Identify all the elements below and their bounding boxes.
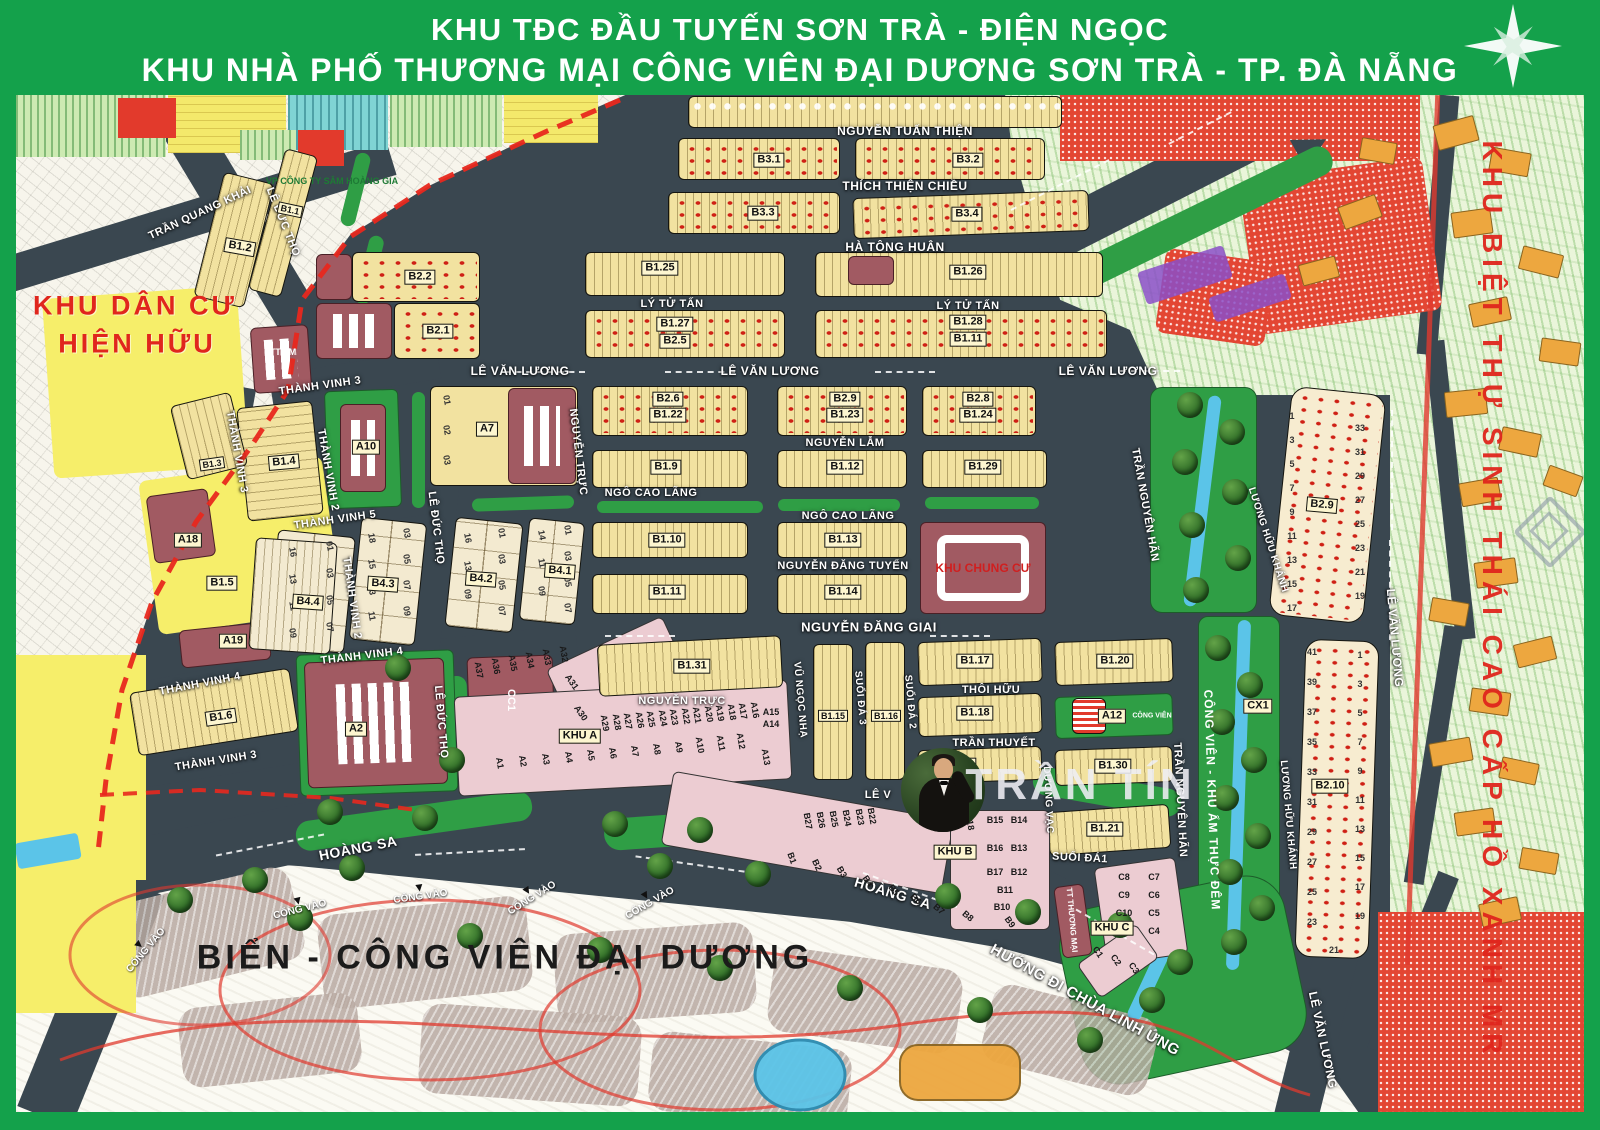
lot-number: 7 — [1289, 483, 1294, 493]
lot-chip-b10: B10 — [994, 902, 1011, 912]
block-chip-b1-26: B1.26 — [949, 265, 986, 280]
lot-chip-a1: A1 — [494, 756, 506, 769]
lot-number: 13 — [287, 573, 299, 585]
map-shape-beachpatch — [417, 1002, 643, 1107]
lot-number: 13 — [1287, 555, 1297, 565]
tree-icon — [1015, 899, 1041, 925]
lot-number: 03 — [324, 567, 336, 579]
lot-number: 09 — [401, 605, 413, 617]
map-shape-median — [597, 501, 763, 513]
lot-number: 09 — [536, 585, 548, 597]
map-shape-median — [412, 392, 425, 508]
street-label-nguy-n-tu-n-thi-n: NGUYỄN TUẤN THIỆN — [837, 124, 973, 138]
tree-icon — [837, 975, 863, 1001]
tree-icon — [602, 811, 628, 837]
area-text-bi-n-c-ng-vi-n-i-d-ng: BIỂN - CÔNG VIÊN ĐẠI DƯƠNG — [197, 939, 813, 978]
street-label-nguy-n-ng-giai: NGUYỄN ĐĂNG GIAI — [801, 620, 937, 635]
road-centerline — [415, 848, 525, 856]
lot-number: 02 — [441, 424, 453, 436]
tree-icon — [242, 867, 268, 893]
map-shape-median — [472, 495, 574, 512]
block-chip-a19: A19 — [219, 634, 247, 649]
master-plan-map: NGUYỄN TUẤN THIỆNTHÍCH THIỆN CHIỀUHÀ TÔN… — [0, 0, 1600, 1130]
area-text-c-ng-vi-n: CÔNG VIÊN — [1132, 713, 1171, 720]
lot-number: 11 — [366, 610, 378, 621]
lot-chip-c8: C8 — [1118, 872, 1130, 882]
tree-icon — [1179, 512, 1205, 538]
lot-number: 5 — [1289, 459, 1294, 469]
lot-chip-c7: C7 — [1148, 872, 1160, 882]
street-label-h-t-ng-hu-n: HÀ TÔNG HUÂN — [845, 240, 944, 254]
lot-number: 33 — [1355, 423, 1365, 433]
tree-icon — [1183, 577, 1209, 603]
block-chip-b1-20: B1.20 — [1096, 654, 1133, 669]
block-chip-b2-6: B2.6 — [652, 392, 683, 407]
road-centerline — [930, 635, 990, 637]
lot-number: 21 — [1355, 567, 1365, 577]
block-chip-b1-25: B1.25 — [641, 261, 678, 276]
lot-chip-c10: C10 — [1116, 908, 1133, 918]
tree-icon — [1205, 635, 1231, 661]
lot-number: 09 — [462, 588, 474, 600]
lot-number: 01 — [562, 524, 574, 536]
lot-chip-a8: A8 — [651, 742, 663, 755]
map-shape-median — [925, 497, 1039, 509]
block-chip-b1-27: B1.27 — [656, 317, 693, 332]
map-block-maroon — [316, 254, 352, 300]
block-chip-b1-14: B1.14 — [824, 585, 861, 600]
lot-number: 17 — [1287, 603, 1297, 613]
tree-icon — [1172, 449, 1198, 475]
tree-icon — [167, 887, 193, 913]
compass-star-icon — [1458, 2, 1568, 90]
block-chip-b2-10: B2.10 — [1311, 779, 1348, 794]
map-block-maroon — [146, 488, 217, 564]
tree-icon — [1222, 479, 1248, 505]
lot-number: 23 — [1307, 917, 1317, 927]
block-chip-b1-13: B1.13 — [824, 533, 861, 548]
block-chip-b3-3: B3.3 — [747, 206, 778, 221]
lot-chip-a15: A15 — [763, 707, 780, 717]
lot-chip-b14: B14 — [1011, 815, 1028, 825]
block-chip-a2: A2 — [345, 722, 367, 737]
logo-watermark-icon — [1516, 498, 1578, 560]
lot-number: 7 — [1357, 737, 1362, 747]
lot-number: 31 — [1355, 447, 1365, 457]
block-chip-b1-22: B1.22 — [649, 408, 686, 423]
block-chip-b4-3: B4.3 — [367, 576, 399, 593]
lot-number: 35 — [1307, 737, 1317, 747]
frame-left — [0, 95, 16, 1112]
lot-number: 1 — [1357, 650, 1362, 660]
tree-icon — [1225, 545, 1251, 571]
street-label-l-v: LÊ V — [865, 789, 891, 801]
street-label-nguy-n-ng-tuy-n: NGUYỄN ĐĂNG TUYỂN — [777, 560, 908, 572]
tree-icon — [385, 655, 411, 681]
street-label-th-i-h-u: THÔI HỮU — [962, 684, 1020, 696]
frame-bottom — [0, 1112, 1600, 1130]
lot-number: 1 — [1289, 411, 1294, 421]
lot-number: 3 — [1289, 435, 1294, 445]
lot-chip-b12: B12 — [1011, 867, 1028, 877]
block-chip-a7: A7 — [476, 422, 498, 437]
street-label-ng-cao-l-ng: NGÔ CAO LÃNG — [605, 487, 698, 499]
block-chip-b1-10: B1.10 — [648, 533, 685, 548]
block-chip-khu-a: KHU A — [559, 729, 601, 744]
block-chip-b1-23: B1.23 — [826, 408, 863, 423]
area-text-tt-tm: TT TM — [270, 347, 297, 357]
tree-icon — [1139, 987, 1165, 1013]
block-chip-b4-1: B4.1 — [544, 563, 576, 580]
street-label-l-v-n-l-ng: LÊ VĂN LƯƠNG — [471, 364, 570, 378]
block-chip-b1-4: B1.4 — [268, 453, 300, 470]
photo-person-bowtie — [940, 781, 948, 785]
lot-chip-c6: C6 — [1148, 890, 1160, 900]
map-shape-ypatch — [16, 868, 136, 1013]
lot-chip-b15: B15 — [987, 815, 1004, 825]
lot-number: 27 — [1355, 495, 1365, 505]
area-text-cc1: CC1 — [505, 689, 517, 711]
tree-icon — [412, 805, 438, 831]
block-chip-khu-c: KHU C — [1091, 921, 1134, 936]
street-label-l-v-n-l-ng: LÊ VĂN LƯƠNG — [1059, 364, 1158, 378]
area-text-khu-chung-c: KHU CHUNG CƯ — [935, 561, 1030, 575]
area-text-khu-bi-t-th-sinh-th-i-ca: KHU BIỆT THỰ SINH THÁI CAO CẤP HỒ XANH M… — [1476, 141, 1508, 1060]
lot-number: 11 — [1355, 795, 1365, 805]
lot-number: 03 — [401, 527, 413, 539]
lot-chip-a6: A6 — [607, 746, 619, 759]
frame-right — [1584, 95, 1600, 1112]
tree-icon — [1167, 949, 1193, 975]
block-chip-b1-11: B1.11 — [649, 585, 686, 600]
map-title-line2: KHU NHÀ PHỐ THƯƠNG MẠI CÔNG VIÊN ĐẠI DƯƠ… — [0, 52, 1600, 89]
lot-number: 19 — [1355, 591, 1365, 601]
lot-chip-b11: B11 — [997, 885, 1013, 895]
lot-number: 29 — [1355, 471, 1365, 481]
map-block-yb — [855, 138, 1045, 180]
block-chip-b1-12: B1.12 — [826, 460, 863, 475]
lot-number: 09 — [287, 627, 299, 639]
lot-number: 15 — [366, 558, 378, 570]
block-chip-b4-4: B4.4 — [292, 594, 324, 611]
block-chip-b1-31: B1.31 — [673, 659, 710, 674]
lot-chip-b17: B17 — [987, 867, 1004, 877]
lot-number: 16 — [462, 532, 474, 544]
photo-person-head — [934, 758, 953, 780]
street-label-l-ng-h-u-kh-nh: LƯƠNG HỮU KHÁNH — [1278, 760, 1299, 870]
tree-icon — [745, 861, 771, 887]
lot-chip-a5: A5 — [585, 748, 597, 761]
lot-number: 16 — [287, 546, 299, 558]
street-label-l-v-n-l-ng: LÊ VĂN LƯƠNG — [721, 364, 820, 378]
lot-chip-c4: C4 — [1148, 926, 1160, 936]
area-text-vp-c-ng-ty-s-m-ho-ng-gia: VP CÔNG TY SÂM HOÀNG GIA — [266, 176, 398, 186]
block-chip-b1-18: B1.18 — [956, 706, 993, 721]
tree-icon — [1249, 895, 1275, 921]
map-shape-tile-gh — [390, 95, 502, 147]
map-shape-tile-r — [118, 98, 176, 138]
area-text-hi-n-h-u: HIỆN HỮU — [58, 329, 215, 360]
tree-icon — [967, 997, 993, 1023]
lot-chip-c9: C9 — [1118, 890, 1130, 900]
tree-icon — [1219, 419, 1245, 445]
lot-chip-a2: A2 — [517, 754, 529, 767]
street-label-th-ch-thi-n-chi-u: THÍCH THIỆN CHIỀU — [842, 179, 967, 193]
street-label-l-t-t-n: LÝ TỬ TẤN — [640, 298, 703, 310]
map-block-maroon — [848, 256, 894, 285]
lot-number: 23 — [1355, 543, 1365, 553]
block-chip-b1-16: B1.16 — [871, 710, 901, 722]
lot-number: 11 — [1287, 531, 1297, 541]
lot-number: 07 — [496, 605, 508, 617]
street-label-v-ng-c-nh: VŨ NGỌC NHẠ — [791, 661, 809, 738]
lot-chip-b16: B16 — [987, 843, 1004, 853]
block-chip-b1-17: B1.17 — [956, 654, 993, 669]
lot-number: 9 — [1289, 507, 1294, 517]
area-text-tr-n-t-n: TRẦN TÍN — [965, 760, 1194, 810]
street-label-su-i-1: SUỐI ĐÁ1 — [1052, 851, 1109, 866]
road-centerline — [875, 371, 935, 373]
lot-number: 33 — [1307, 767, 1317, 777]
lot-number: 01 — [496, 527, 508, 539]
map-block-maroon — [304, 658, 448, 789]
lot-chip-a3: A3 — [540, 752, 552, 765]
block-chip-b1-28: B1.28 — [949, 315, 986, 330]
lot-number: 37 — [1307, 707, 1317, 717]
block-chip-b1-29: B1.29 — [964, 460, 1001, 475]
lot-number: 25 — [1355, 519, 1365, 529]
tree-icon — [1221, 929, 1247, 955]
lot-number: 07 — [324, 621, 336, 633]
lot-chip-b13: B13 — [1011, 843, 1028, 853]
lot-number: 07 — [562, 602, 574, 614]
lot-number: 03 — [441, 454, 453, 466]
block-chip-b1-24: B1.24 — [959, 408, 996, 423]
block-chip-a18: A18 — [174, 533, 202, 548]
lot-number: 01 — [324, 540, 336, 552]
map-block-yb — [585, 252, 785, 296]
street-label-ng-cao-l-ng: NGÔ CAO LÃNG — [802, 510, 895, 522]
area-text-khu-d-n-c: KHU DÂN CƯ — [33, 291, 237, 322]
map-shape-tile-y — [504, 95, 598, 143]
tree-icon — [1237, 672, 1263, 698]
lot-number: 3 — [1357, 679, 1362, 689]
lot-number: 15 — [1355, 853, 1365, 863]
block-chip-b4-2: B4.2 — [465, 571, 497, 588]
lot-number: 13 — [1355, 824, 1365, 834]
tree-icon — [647, 853, 673, 879]
block-chip-cx1: CX1 — [1243, 699, 1272, 714]
map-block-maroon — [316, 303, 392, 359]
block-chip-b2-1: B2.1 — [422, 324, 453, 339]
lot-chip-c5: C5 — [1148, 908, 1160, 918]
map-title-line1: KHU TĐC ĐẦU TUYẾN SƠN TRÀ - ĐIỆN NGỌC — [0, 12, 1600, 48]
lot-number: 25 — [1307, 887, 1317, 897]
block-chip-b3-2: B3.2 — [952, 153, 983, 168]
lot-number: 29 — [1307, 827, 1317, 837]
tree-icon — [1241, 747, 1267, 773]
block-chip-b2-9: B2.9 — [1306, 496, 1338, 513]
lot-number: 18 — [366, 532, 378, 544]
street-label-l-t-t-n: LÝ TỬ TẤN — [936, 300, 999, 312]
street-label-nguy-n-l-m: NGUYỄN LẪM — [806, 437, 885, 449]
lot-number: 39 — [1307, 677, 1317, 687]
block-chip-b1-15: B1.15 — [818, 710, 848, 722]
lot-number: 17 — [1355, 882, 1365, 892]
tree-icon — [687, 817, 713, 843]
lot-number: 14 — [536, 529, 548, 541]
lot-chip-a14: A14 — [763, 719, 780, 729]
lot-number: 9 — [1357, 766, 1362, 776]
lot-chip-a9: A9 — [673, 740, 685, 753]
tree-icon — [1177, 392, 1203, 418]
tree-icon — [317, 799, 343, 825]
lot-number: 19 — [1355, 911, 1365, 921]
block-chip-b2-8: B2.8 — [962, 392, 993, 407]
block-chip-b3-4: B3.4 — [951, 207, 982, 222]
block-chip-b2-9: B2.9 — [829, 392, 860, 407]
lot-chip-a7: A7 — [629, 744, 641, 757]
tree-icon — [1245, 823, 1271, 849]
block-chip-b3-1: B3.1 — [753, 153, 784, 168]
lot-number: 03 — [496, 553, 508, 565]
lot-number: 05 — [401, 553, 413, 565]
road-centerline — [605, 635, 675, 637]
lot-number: 27 — [1307, 857, 1317, 867]
block-chip-b2-2: B2.2 — [404, 270, 435, 285]
block-chip-a10: A10 — [352, 440, 380, 455]
lot-number: 07 — [401, 579, 413, 591]
block-chip-b1-21: B1.21 — [1086, 822, 1123, 837]
block-chip-b1-9: B1.9 — [650, 460, 681, 475]
lot-chip-a4: A4 — [563, 750, 575, 763]
lot-number: 5 — [1357, 708, 1362, 718]
lot-number: 05 — [496, 579, 508, 591]
block-chip-b1-11: B1.11 — [950, 332, 987, 347]
lot-number: 05 — [324, 594, 336, 606]
street-label-tr-n-thuy-t: TRẦN THUYẾT — [952, 737, 1035, 749]
block-chip-b1-5: B1.5 — [206, 576, 237, 591]
lot-number: 03 — [562, 550, 574, 562]
tree-icon — [1077, 1027, 1103, 1053]
block-chip-b2-5: B2.5 — [659, 334, 690, 349]
road-centerline — [1391, 410, 1393, 530]
map-block-maroon — [508, 388, 576, 484]
block-chip-a12: A12 — [1098, 709, 1126, 724]
block-chip-khu-b: KHU B — [934, 845, 977, 860]
lot-number: 31 — [1307, 797, 1317, 807]
lot-number: 21 — [1329, 945, 1339, 955]
lot-number: 01 — [441, 394, 453, 406]
lot-number: 41 — [1307, 647, 1317, 657]
